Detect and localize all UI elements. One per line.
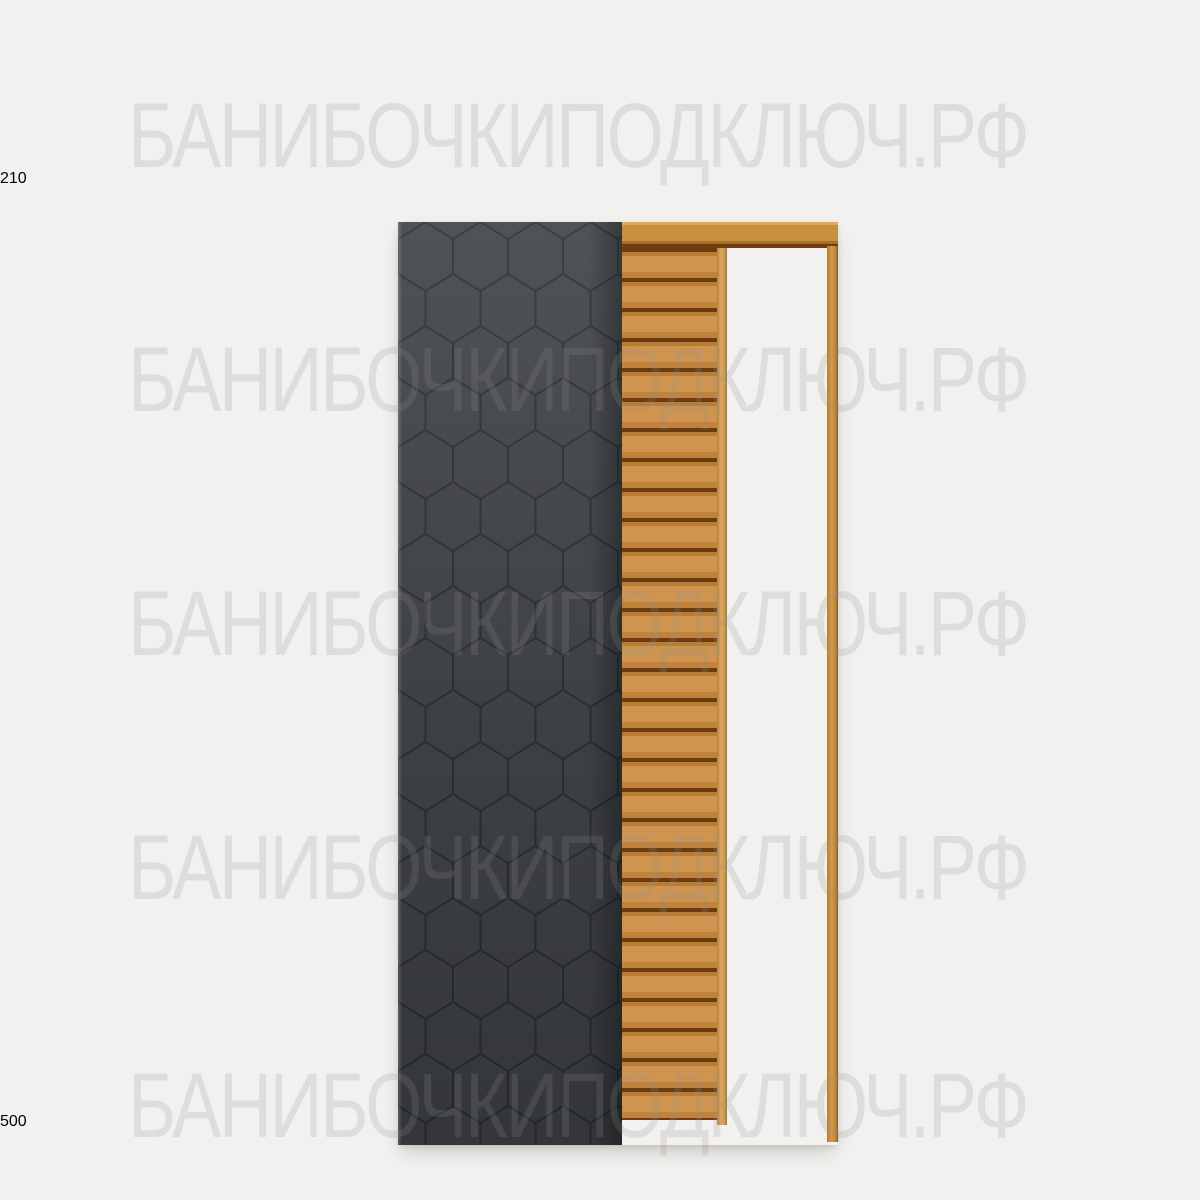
bench-planks	[727, 248, 827, 1125]
top-wall-frame	[622, 222, 838, 248]
roof-shingles-half	[398, 222, 622, 1145]
dimension-line-right	[0, 1131, 1, 1200]
bench-divider-rail	[717, 248, 727, 1125]
extension-line	[0, 75, 1, 170]
floor-planks	[622, 248, 717, 1120]
dimension-label-width: 210	[0, 170, 1200, 188]
dimension-line-left	[0, 188, 1, 1111]
extension-line	[0, 1, 1, 75]
roof-wall-seam-shadow	[588, 222, 622, 1145]
watermark-row: БАНИБОЧКИПОДКЛЮЧ.РФ	[128, 90, 1027, 182]
roof-left-edge-highlight	[398, 222, 402, 1145]
right-wall-frame	[827, 246, 838, 1142]
plan-drawing-canvas: БАНИБОЧКИПОДКЛЮЧ.РФ БАНИБОЧКИПОДКЛЮЧ.РФ …	[0, 0, 1200, 1200]
sauna-room-half	[622, 222, 838, 1145]
dimension-line-top	[0, 0, 440, 1]
sauna-structure	[398, 222, 838, 1145]
